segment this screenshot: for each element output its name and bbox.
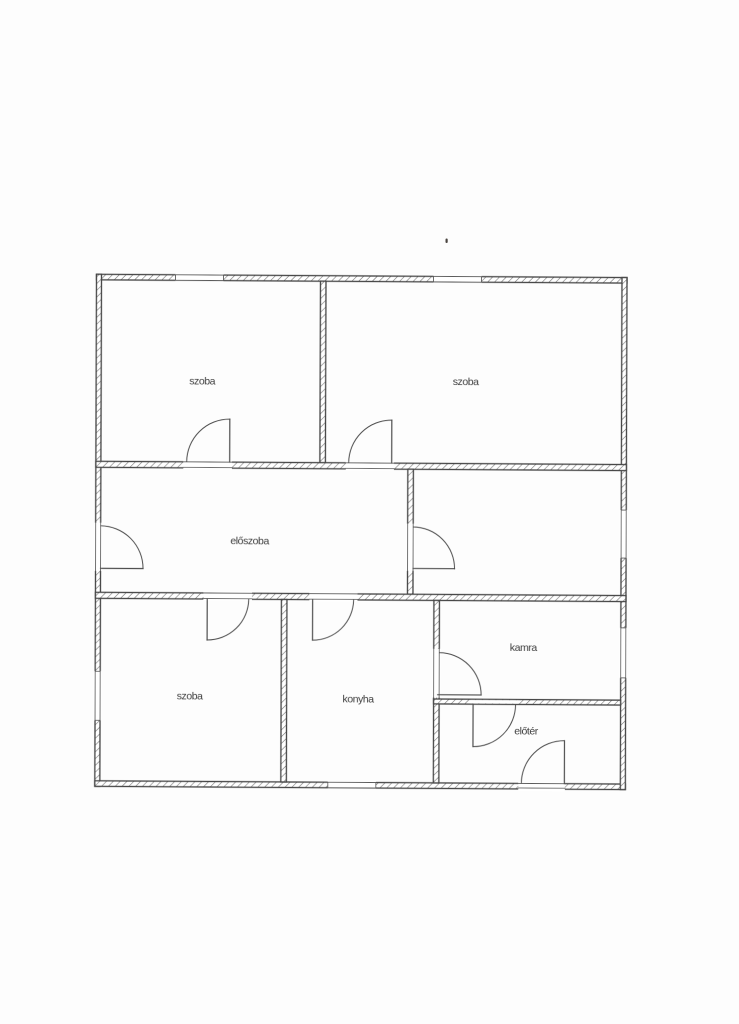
svg-text:kamra: kamra [510,642,538,654]
svg-text:előszoba: előszoba [230,535,269,547]
svg-text:konyha: konyha [342,693,374,705]
svg-text:szoba: szoba [189,375,215,387]
svg-text:szoba: szoba [177,690,203,702]
svg-text:szoba: szoba [453,376,479,388]
svg-text:előtér: előtér [514,725,539,737]
